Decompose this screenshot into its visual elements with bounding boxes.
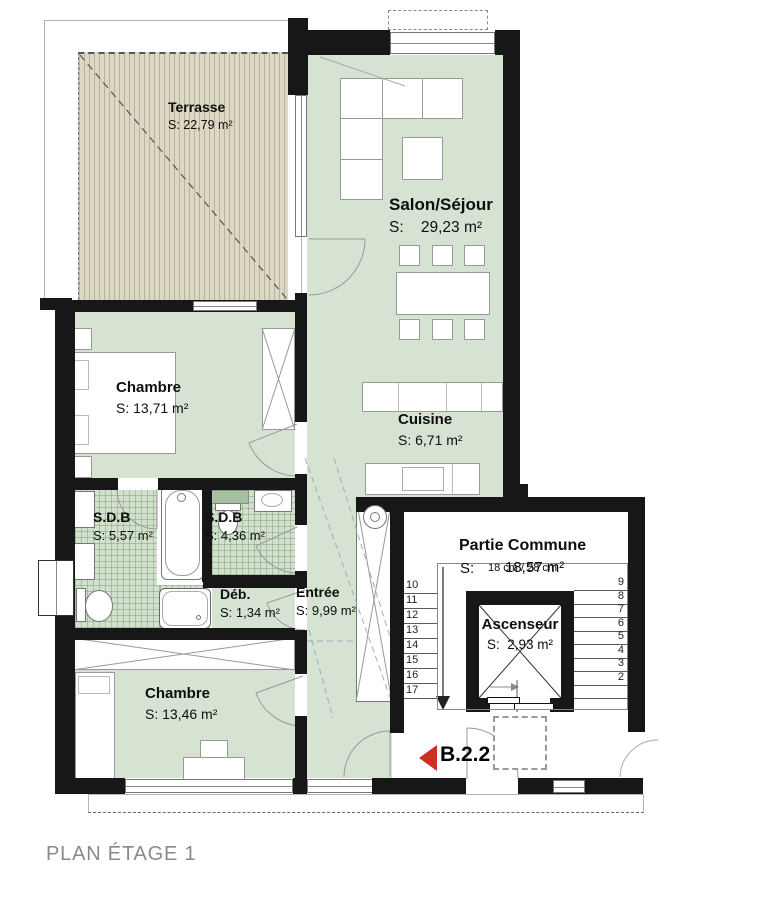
room-name: Chambre [145, 686, 217, 703]
room-label-entree: Entrée S: 9,99 m² [296, 585, 356, 619]
stair-step-number: 14 [406, 640, 418, 651]
unit-label: B.2.2 [440, 743, 490, 767]
stair-step-number: 17 [406, 685, 418, 696]
stair-step-number: 5 [604, 631, 624, 642]
room-label-debarras: Déb. S: 1,34 m² [220, 587, 280, 621]
floor-plan: 101112131415161798765432 Terrasse S: 22,… [0, 0, 767, 900]
stair-tread [404, 698, 437, 699]
stair-step-number: 3 [604, 658, 624, 669]
partie-commune-area-value: 18,57 m² [505, 559, 564, 576]
room-area: S: 13,71 m² [116, 401, 188, 416]
stair-step-number: 10 [406, 580, 418, 591]
duct-icon-inner [370, 512, 380, 522]
room-name: Chambre [116, 380, 188, 397]
room-area: S: 29,23 m² [389, 219, 493, 236]
room-name: S.D.B [205, 510, 265, 525]
room-label-partie-commune: Partie Commune [459, 537, 586, 555]
room-name: Terrasse [168, 100, 233, 115]
stair-step-number: 13 [406, 625, 418, 636]
room-name: Entrée [296, 585, 356, 600]
void-dashed-square [493, 716, 547, 770]
plan-caption: PLAN ÉTAGE 1 [46, 843, 196, 866]
room-name: Ascenseur [466, 617, 574, 634]
room-name: Déb. [220, 587, 280, 602]
room-name: Cuisine [398, 412, 463, 429]
room-label-ascenseur: Ascenseur S: 2,93 m² [466, 617, 574, 652]
stair-step-number: 11 [406, 595, 417, 606]
stair-step-number: 9 [604, 577, 624, 588]
stair-step-number: 16 [406, 670, 418, 681]
room-name: Partie Commune [459, 537, 586, 555]
stair-step-number: 15 [406, 655, 418, 666]
stair-step-number: 2 [604, 672, 624, 683]
room-label-sdb2: S.D.B S: 4,36 m² [205, 510, 265, 544]
room-area: S: 13,46 m² [145, 707, 217, 722]
room-area: S: 5,57 m² [93, 529, 153, 543]
stair-step-number: 12 [406, 610, 418, 621]
stair-step-number: 4 [604, 645, 624, 656]
stair-step-number: 8 [604, 591, 624, 602]
stair-tread [574, 685, 628, 686]
room-label-chambre2: Chambre S: 13,46 m² [145, 686, 217, 722]
stair-step-number: 6 [604, 618, 624, 629]
room-area: S: 1,34 m² [220, 606, 280, 620]
room-label-chambre1: Chambre S: 13,71 m² [116, 380, 188, 416]
stair-step-number: 7 [604, 604, 624, 615]
room-label-cuisine: Cuisine S: 6,71 m² [398, 412, 463, 448]
room-area: S: 9,99 m² [296, 604, 356, 618]
stair-tread [574, 698, 628, 699]
room-label-salon: Salon/Séjour S: 29,23 m² [389, 196, 493, 236]
room-label-terrasse: Terrasse S: 22,79 m² [168, 100, 233, 133]
room-name: S.D.B [93, 510, 153, 525]
room-name: Salon/Séjour [389, 196, 493, 215]
room-area: S: 4,36 m² [205, 529, 265, 543]
partie-commune-area-prefix: S: [460, 560, 474, 577]
room-label-sdb1: S.D.B S: 5,57 m² [93, 510, 153, 544]
room-area: S: 22,79 m² [168, 119, 233, 133]
staircase: 101112131415161798765432 [0, 0, 767, 900]
unit-marker-arrow-icon [419, 745, 437, 771]
room-area: S: 6,71 m² [398, 433, 463, 448]
room-area: S: 2,93 m² [466, 638, 574, 653]
